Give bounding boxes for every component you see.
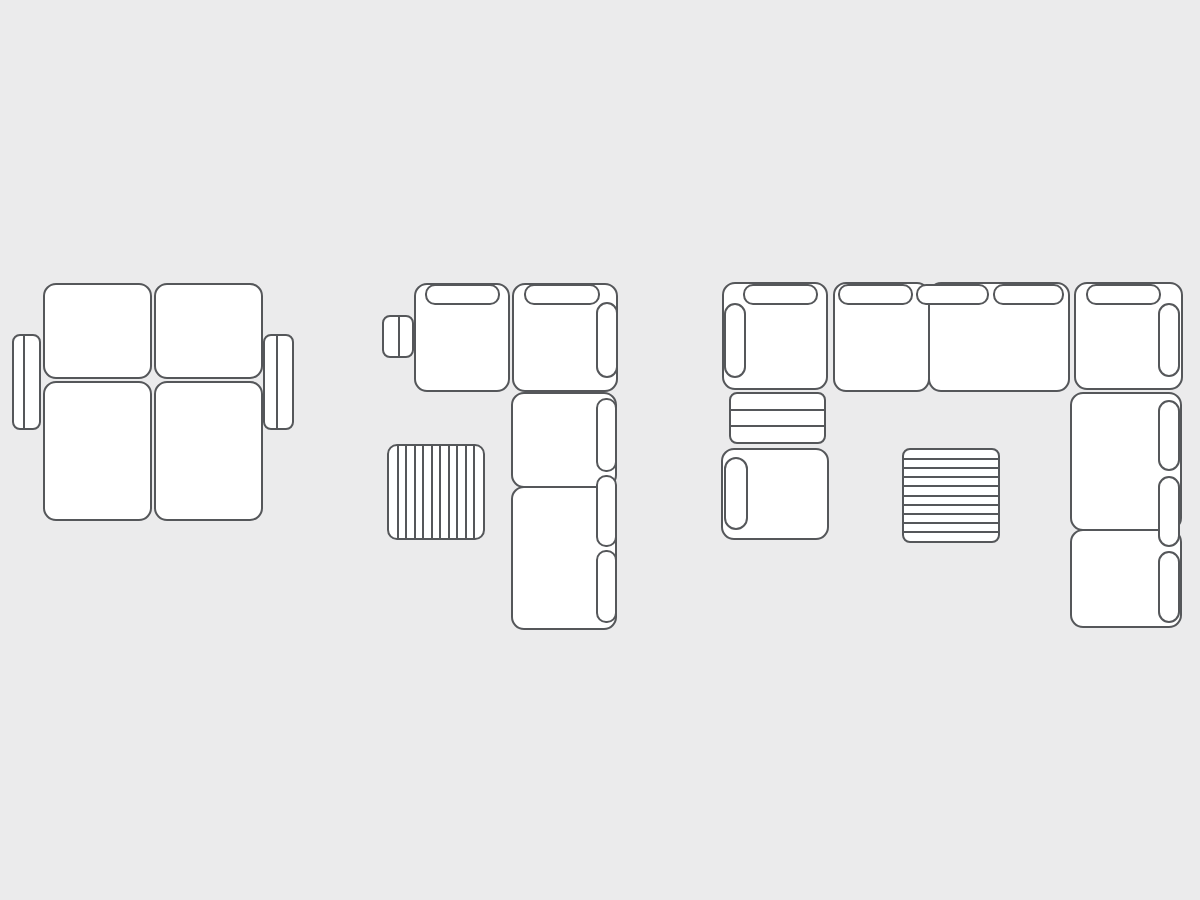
- stripe-line: [473, 446, 475, 538]
- stripe-line: [448, 446, 450, 538]
- chaise-cushion-bottom-right: [154, 381, 263, 521]
- stripe-line: [904, 495, 998, 497]
- armrest-divider-line: [23, 336, 25, 428]
- stripe-line: [456, 446, 458, 538]
- stripe-line: [405, 446, 407, 538]
- stripe-line: [414, 446, 416, 538]
- stripe-line: [904, 476, 998, 478]
- stripe-line: [904, 531, 998, 533]
- back-cushion: [993, 284, 1064, 305]
- side-back-cushion: [596, 475, 617, 547]
- right-armrest: [263, 334, 294, 430]
- stripe-line: [422, 446, 424, 538]
- side-back-cushion: [724, 457, 748, 530]
- side-back-cushion: [1158, 476, 1180, 547]
- armrest-divider-line: [398, 317, 400, 356]
- stripe-line: [731, 409, 824, 411]
- stripe-line: [904, 458, 998, 460]
- back-cushion: [524, 284, 600, 305]
- seat-cushion-top-right: [154, 283, 263, 379]
- slatted-shelf-module: [729, 392, 826, 444]
- stripe-line: [904, 522, 998, 524]
- stripe-line: [904, 485, 998, 487]
- seat-cushion-top-left: [43, 283, 152, 379]
- stripe-line: [397, 446, 399, 538]
- striped-ottoman: [902, 448, 1000, 543]
- left-armrest: [12, 334, 41, 430]
- stripe-line: [465, 446, 467, 538]
- side-back-cushion: [1158, 400, 1180, 471]
- back-cushion: [425, 284, 500, 305]
- stripe-line: [904, 504, 998, 506]
- back-cushion: [916, 284, 989, 305]
- stripe-line: [904, 467, 998, 469]
- side-back-cushion: [596, 550, 617, 623]
- back-cushion: [838, 284, 913, 305]
- stripe-line: [431, 446, 433, 538]
- side-back-cushion: [596, 398, 617, 472]
- side-back-cushion: [1158, 303, 1180, 377]
- striped-ottoman: [387, 444, 485, 540]
- side-back-cushion: [1158, 551, 1180, 623]
- chaise-cushion-bottom-left: [43, 381, 152, 521]
- armrest-divider-line: [276, 336, 278, 428]
- back-cushion: [1086, 284, 1161, 305]
- diagram-canvas: [0, 0, 1200, 900]
- left-armrest: [382, 315, 414, 358]
- back-cushion: [743, 284, 818, 305]
- stripe-line: [904, 513, 998, 515]
- side-back-cushion: [724, 303, 746, 378]
- side-back-cushion: [596, 302, 618, 378]
- stripe-line: [731, 425, 824, 427]
- stripe-line: [439, 446, 441, 538]
